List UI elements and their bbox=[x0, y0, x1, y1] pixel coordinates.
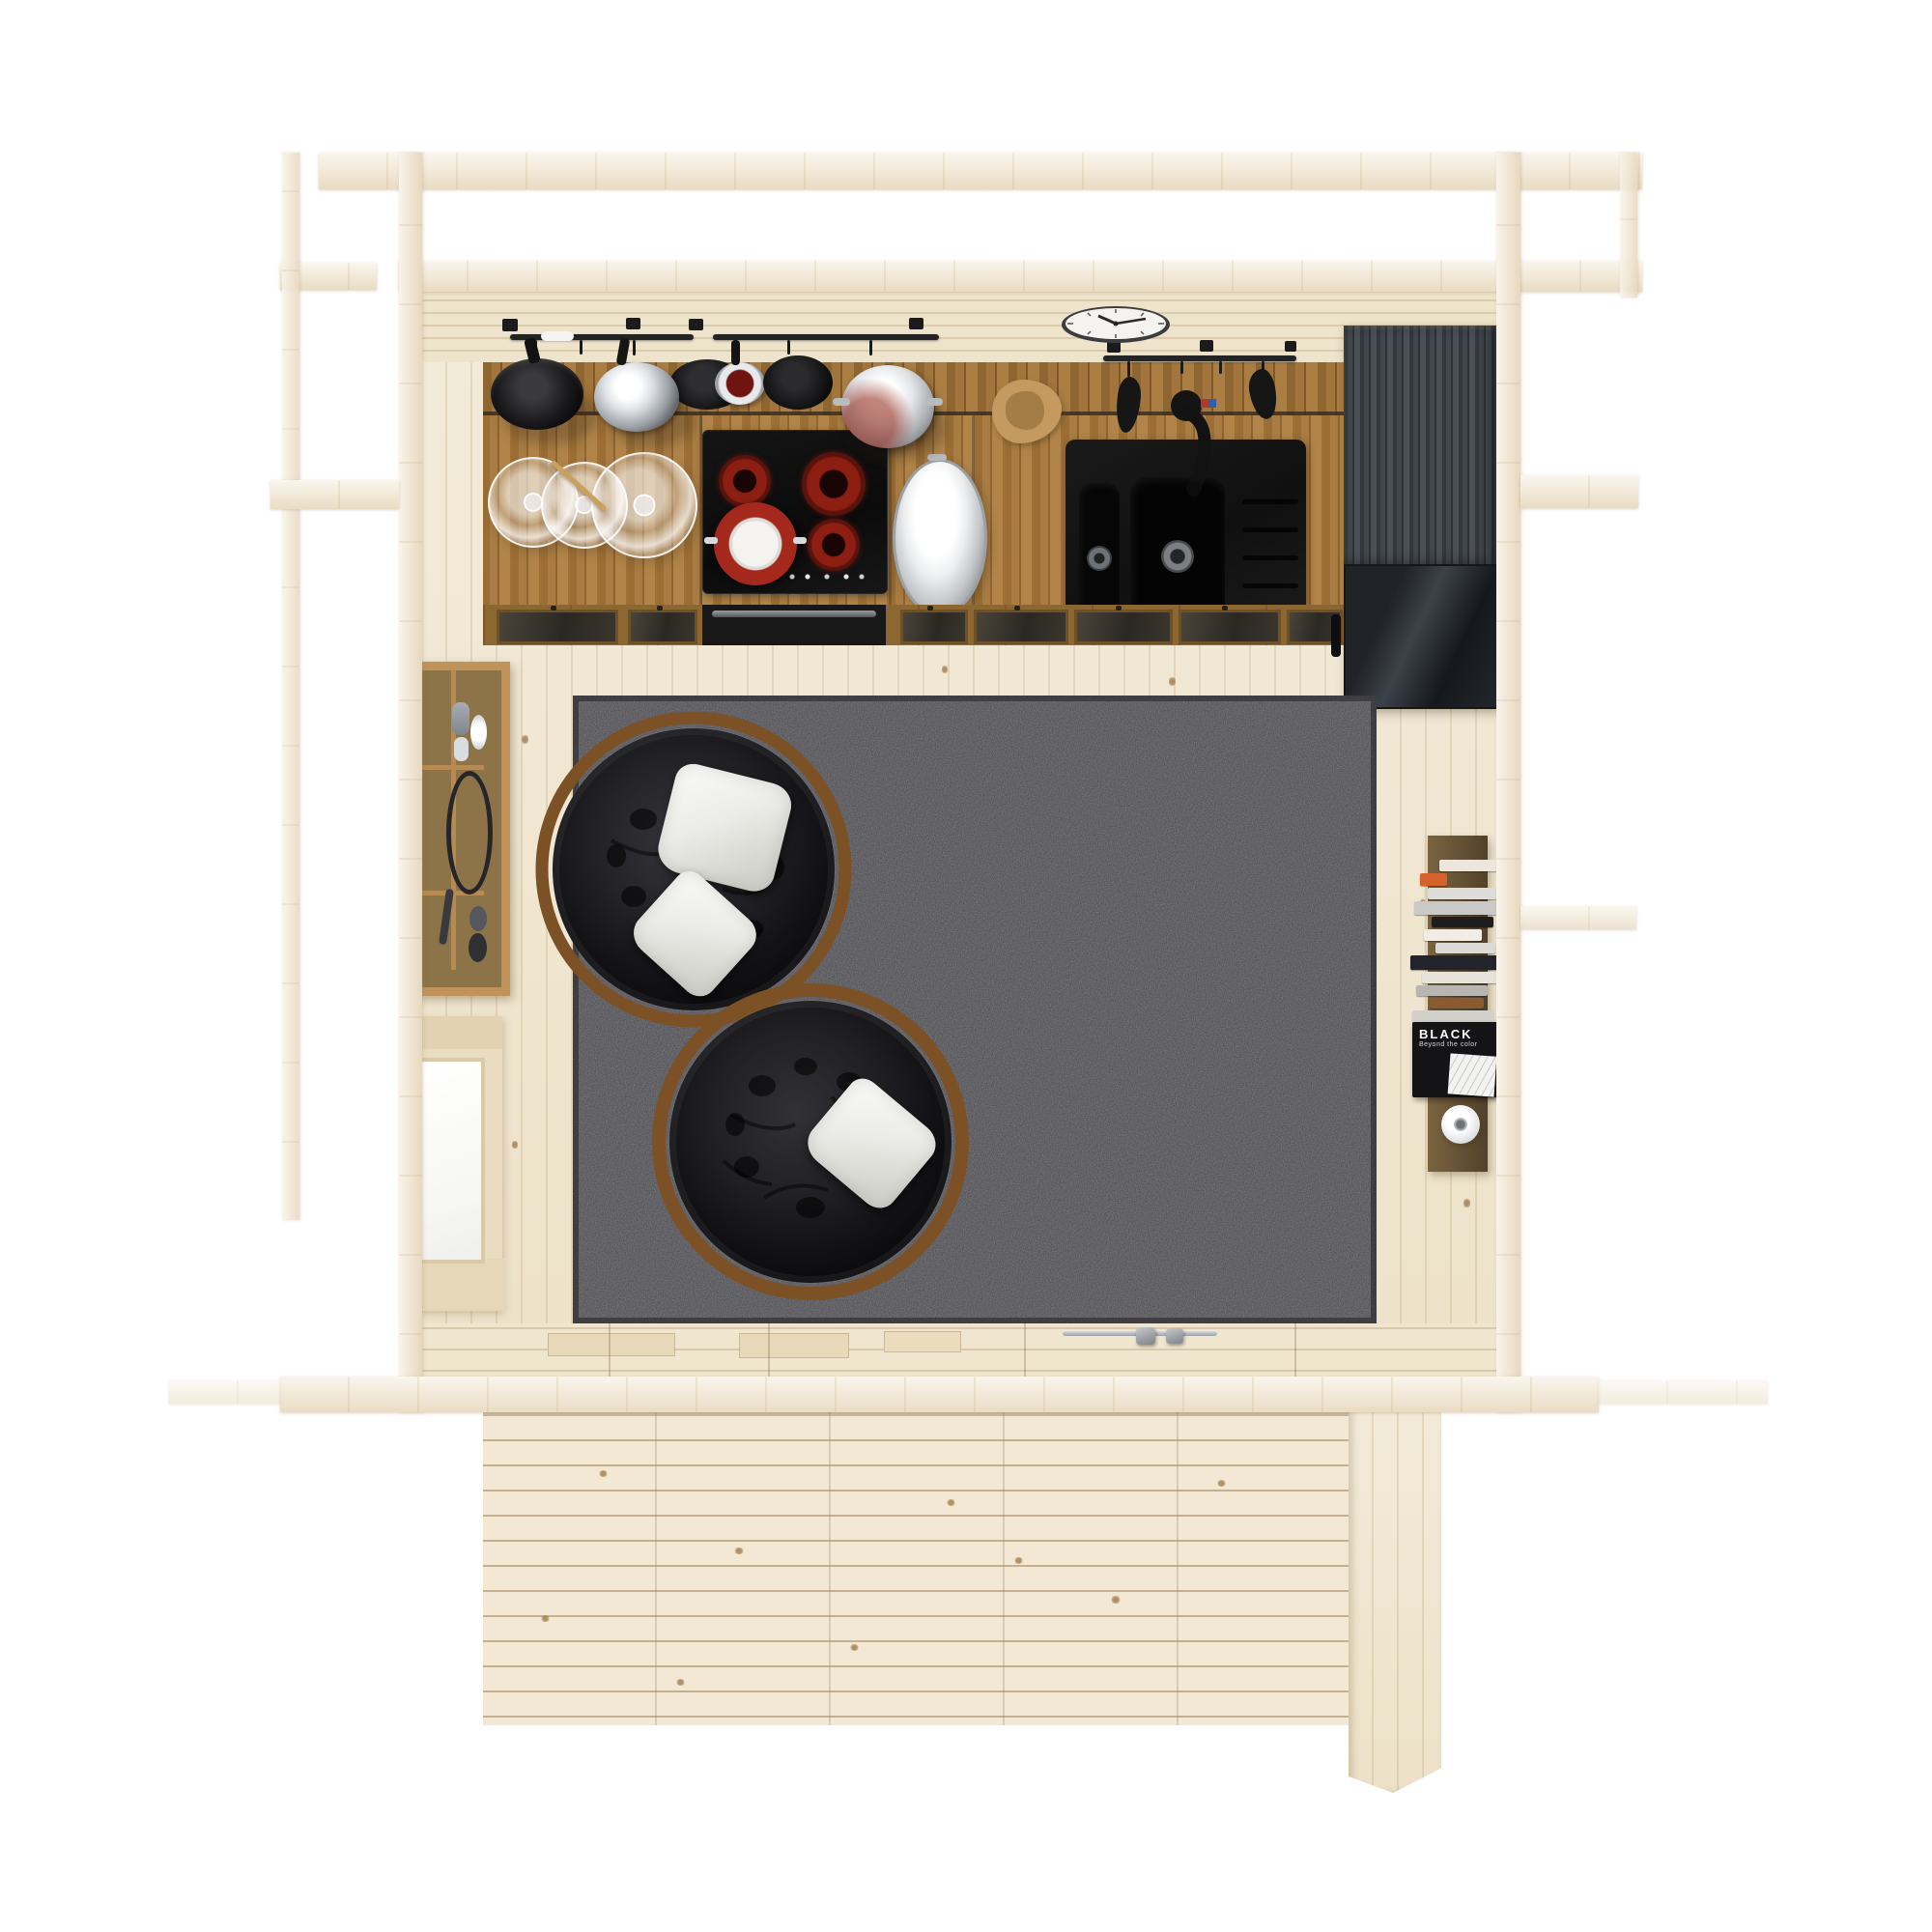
cabin-topdown-render: BLACK Beyond the color bbox=[0, 0, 1932, 1932]
book-spine bbox=[1420, 873, 1447, 886]
s-hook bbox=[633, 340, 636, 355]
shelf-plate bbox=[470, 715, 487, 750]
red-saucepan-handle bbox=[731, 340, 740, 365]
featured-book-subtitle: Beyond the color bbox=[1412, 1041, 1501, 1048]
drainboard-groove bbox=[1242, 499, 1298, 504]
hob-controls bbox=[771, 572, 867, 582]
porch-post-left bbox=[282, 153, 299, 1220]
deck-side-wall bbox=[1349, 1383, 1441, 1793]
roof-beam-top bbox=[319, 153, 1642, 189]
window-glazing bbox=[417, 1058, 485, 1264]
oven bbox=[702, 605, 886, 645]
cabinet-band bbox=[483, 605, 1344, 645]
rail-mount bbox=[502, 319, 518, 331]
wall-clock bbox=[1059, 303, 1173, 346]
steel-stockpot bbox=[841, 365, 934, 448]
roof-beam-bottom-ext bbox=[1599, 1380, 1768, 1404]
shelf-bottle bbox=[454, 737, 469, 761]
shelf-divider bbox=[422, 765, 484, 770]
black-wok bbox=[491, 358, 583, 430]
book-spine bbox=[1435, 943, 1495, 953]
cabinet-glass-door bbox=[900, 610, 968, 644]
shelf-jar bbox=[469, 906, 487, 931]
featured-book-title: BLACK bbox=[1412, 1022, 1501, 1041]
shelf-jar bbox=[469, 933, 487, 962]
rail-mount bbox=[909, 318, 923, 329]
drainboard-groove bbox=[1242, 583, 1298, 588]
burner bbox=[808, 519, 860, 571]
cabinet-glass-door bbox=[497, 610, 618, 644]
book-spine bbox=[1414, 901, 1497, 915]
porch-stub-right-low bbox=[1520, 906, 1636, 929]
s-hook bbox=[1180, 361, 1183, 374]
deck-knot bbox=[1014, 1557, 1023, 1564]
s-hook bbox=[869, 340, 872, 355]
book-spine bbox=[1416, 985, 1488, 996]
drainboard-groove bbox=[1242, 527, 1298, 532]
roof-beam-header bbox=[399, 261, 1642, 292]
roof-beam-right bbox=[1496, 153, 1520, 1412]
floor-knot bbox=[522, 734, 528, 745]
s-hook bbox=[1127, 361, 1130, 377]
vase-mouth bbox=[1454, 1118, 1467, 1131]
door-handle bbox=[1166, 1328, 1183, 1344]
s-hook bbox=[580, 340, 582, 355]
deck-knot bbox=[850, 1644, 859, 1651]
faucet bbox=[1155, 384, 1242, 510]
burner bbox=[802, 452, 866, 516]
fridge bbox=[1344, 326, 1496, 564]
book-spine bbox=[1428, 888, 1499, 899]
s-hook bbox=[787, 340, 790, 355]
book-spine bbox=[1430, 998, 1484, 1009]
fridge-lower-cabinet bbox=[1344, 564, 1500, 709]
pot-rail bbox=[510, 334, 694, 340]
stockpot-handle bbox=[833, 398, 850, 406]
fridge-handle bbox=[1331, 614, 1341, 657]
roof-beam-bottom bbox=[280, 1377, 1599, 1412]
cabinet-knob bbox=[927, 606, 933, 611]
tray-handle bbox=[927, 454, 947, 461]
floor-knot bbox=[1463, 1198, 1470, 1208]
front-sill bbox=[548, 1333, 675, 1356]
book-spine bbox=[1432, 917, 1493, 927]
serving-tray bbox=[893, 459, 987, 616]
sink-drain bbox=[1161, 540, 1194, 573]
cabinet-knob bbox=[551, 606, 556, 611]
shelf-clock-ring bbox=[446, 771, 493, 895]
deck-knot bbox=[947, 1499, 955, 1506]
white-vase bbox=[1441, 1105, 1480, 1144]
red-saucepan bbox=[715, 362, 765, 405]
burner bbox=[719, 455, 771, 507]
cabinet-glass-door bbox=[974, 610, 1068, 644]
pot-handle bbox=[704, 537, 718, 544]
featured-book: BLACK Beyond the color bbox=[1412, 1022, 1501, 1097]
rail-mount bbox=[1200, 340, 1213, 352]
pot-rail bbox=[713, 334, 939, 340]
roof-beam-bottom-ext bbox=[169, 1380, 280, 1404]
cabinet-glass-door bbox=[1179, 610, 1281, 644]
board-grain bbox=[1006, 391, 1044, 430]
front-sill bbox=[884, 1331, 961, 1352]
porch-stub-right bbox=[1520, 475, 1638, 508]
roof-beam-left bbox=[399, 153, 422, 1412]
porch-stub-left bbox=[270, 480, 399, 509]
deck-knot bbox=[1111, 1596, 1121, 1604]
glass-lid bbox=[591, 452, 697, 558]
porch-post-right bbox=[1620, 153, 1637, 298]
floor-knot bbox=[512, 1140, 518, 1150]
book-cover-art bbox=[1448, 1053, 1497, 1096]
deck-knot bbox=[1217, 1480, 1226, 1487]
stockpot-handle bbox=[925, 398, 943, 406]
pot-handle bbox=[793, 537, 807, 544]
cabinet-knob bbox=[1222, 606, 1228, 611]
cabinet-glass-door bbox=[628, 610, 697, 644]
cabinet-knob bbox=[1014, 606, 1020, 611]
deck-knot bbox=[734, 1548, 744, 1554]
book-spine bbox=[1410, 955, 1499, 970]
cabinet-knob bbox=[1116, 606, 1122, 611]
rail-mount bbox=[689, 319, 703, 330]
s-hook bbox=[1219, 361, 1222, 374]
steel-saucepan bbox=[594, 362, 679, 432]
deck-knot bbox=[541, 1615, 550, 1622]
cabinet-glass-door bbox=[1074, 610, 1173, 644]
book-spine bbox=[1439, 860, 1497, 871]
cabinet-knob bbox=[657, 606, 663, 611]
door-handle bbox=[1136, 1327, 1155, 1345]
sink-drain bbox=[1087, 546, 1112, 571]
pot-rail bbox=[1103, 355, 1296, 361]
shelf-bottle bbox=[452, 702, 469, 735]
book-spine bbox=[1424, 929, 1482, 941]
floor-knot bbox=[1169, 676, 1176, 687]
enamel-pot bbox=[714, 502, 797, 585]
book-spine bbox=[1422, 972, 1499, 983]
deck-knot bbox=[599, 1470, 608, 1477]
deck bbox=[483, 1412, 1349, 1725]
floor-knot bbox=[942, 665, 948, 674]
oven-handle bbox=[712, 611, 876, 617]
drainboard-groove bbox=[1242, 555, 1298, 560]
black-pan bbox=[763, 355, 833, 410]
rail-mount bbox=[1285, 341, 1296, 352]
rail-sleeve bbox=[541, 331, 574, 341]
deck-knot bbox=[676, 1679, 685, 1686]
rail-mount bbox=[626, 318, 640, 329]
front-sill bbox=[739, 1333, 849, 1358]
